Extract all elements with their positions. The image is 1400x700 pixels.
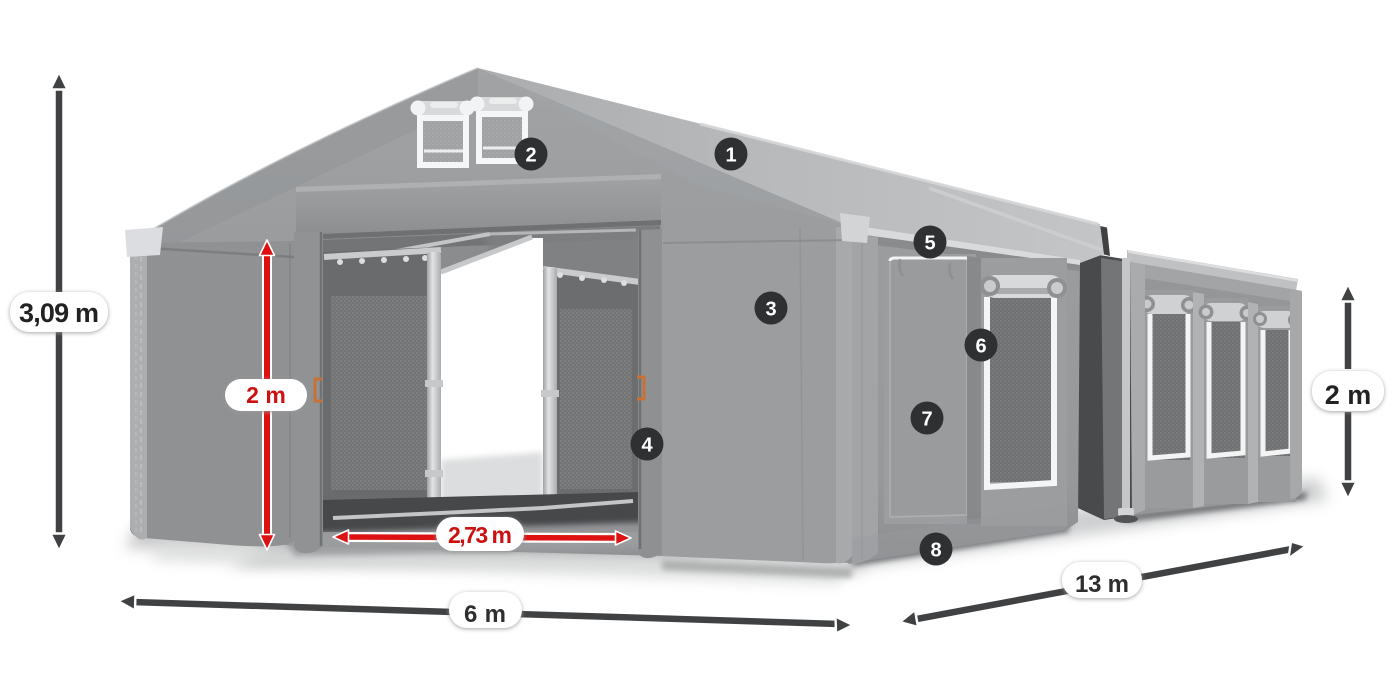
- svg-text:2,73 m: 2,73 m: [448, 522, 512, 548]
- svg-text:2: 2: [525, 145, 536, 167]
- svg-text:8: 8: [930, 540, 941, 562]
- svg-text:1: 1: [725, 145, 736, 167]
- svg-text:13 m: 13 m: [1075, 571, 1129, 598]
- svg-text:3,09 m: 3,09 m: [19, 298, 99, 328]
- svg-text:6 m: 6 m: [464, 601, 506, 628]
- svg-text:6: 6: [975, 336, 986, 358]
- svg-text:2 m: 2 m: [1325, 380, 1372, 410]
- svg-text:4: 4: [641, 435, 653, 457]
- svg-text:2 m: 2 m: [246, 382, 286, 408]
- svg-text:5: 5: [924, 233, 935, 255]
- svg-text:7: 7: [921, 409, 932, 431]
- svg-text:3: 3: [765, 299, 776, 321]
